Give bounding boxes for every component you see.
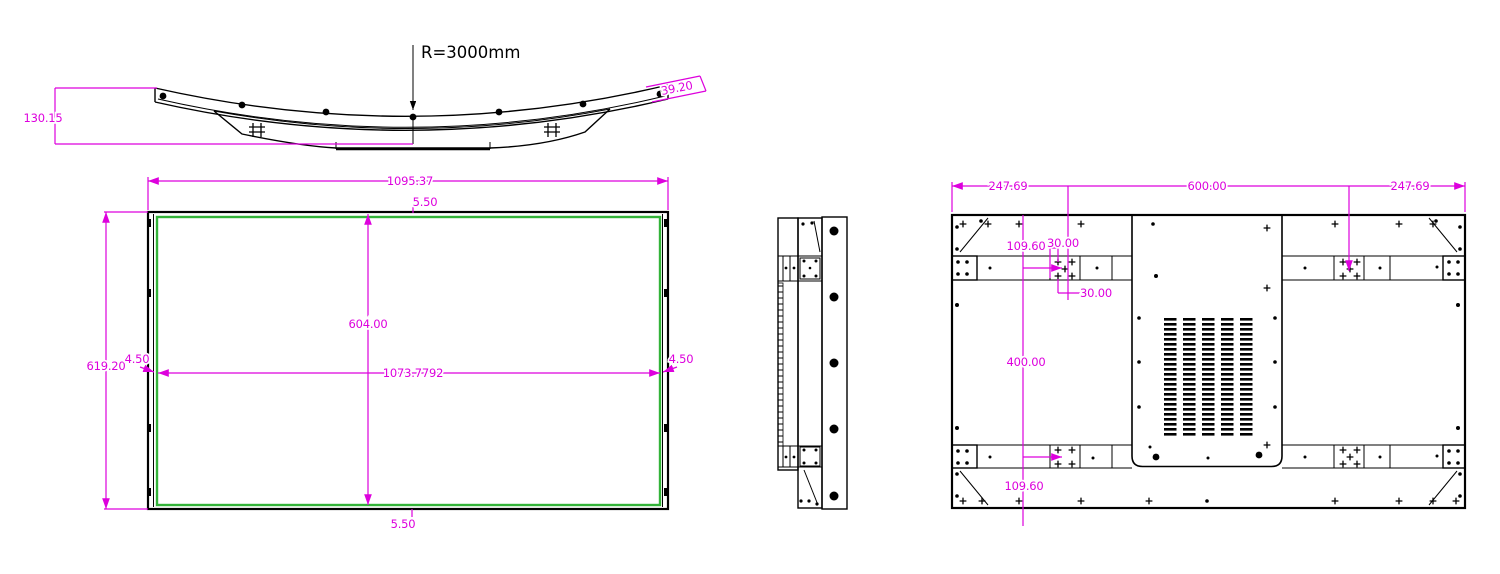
dim-left-bezel: 4.50 bbox=[125, 352, 154, 372]
front-view: 1095.37 5.50 619.20 604.00 1073.7792 4.5… bbox=[86, 174, 693, 531]
curved-top-view: R=3000mm bbox=[23, 43, 706, 149]
vent-panel bbox=[1132, 215, 1282, 467]
left-mount-span-value: 247.69 bbox=[988, 179, 1027, 193]
dim-active-height: 604.00 bbox=[348, 214, 387, 505]
active-area-outline bbox=[157, 217, 660, 505]
hole-pitch-v-value: 30.00 bbox=[1080, 286, 1112, 300]
overall-height-value: 619.20 bbox=[86, 359, 125, 373]
top-mount-offset-value: 109.60 bbox=[1006, 239, 1045, 253]
center-mount-span-value: 600.00 bbox=[1187, 179, 1226, 193]
bottom-mount-offset-value: 109.60 bbox=[1004, 479, 1043, 493]
dim-bottom-bezel: 5.50 bbox=[391, 509, 416, 531]
active-height-value: 604.00 bbox=[348, 317, 387, 331]
clip-symbol-left bbox=[249, 123, 265, 137]
hole-pitch-h-value: 30.00 bbox=[1047, 236, 1079, 250]
front-edge-ticks bbox=[147, 219, 668, 496]
right-mount-span-value: 247.69 bbox=[1390, 179, 1429, 193]
engineering-drawing-canvas: R=3000mm bbox=[0, 0, 1500, 574]
top-depth-value: 130.15 bbox=[23, 111, 62, 125]
left-bezel-value: 4.50 bbox=[125, 352, 150, 366]
side-view bbox=[778, 217, 847, 509]
clip-symbol-right bbox=[544, 123, 560, 137]
radius-label: R=3000mm bbox=[421, 43, 520, 62]
vertical-mount-span-value: 400.00 bbox=[1006, 355, 1045, 369]
dim-overall-width: 1095.37 bbox=[148, 174, 668, 210]
overall-width-value: 1095.37 bbox=[387, 174, 433, 188]
bottom-bezel-value: 5.50 bbox=[391, 517, 416, 531]
active-width-value: 1073.7792 bbox=[383, 366, 443, 380]
top-view-screw-holes bbox=[160, 91, 664, 121]
front-outer-frame bbox=[148, 212, 668, 509]
right-bezel-value: 4.50 bbox=[669, 352, 694, 366]
side-strip-holes bbox=[830, 227, 839, 501]
side-glass-edge bbox=[778, 283, 783, 446]
dim-top-bezel: 5.50 bbox=[413, 195, 438, 213]
dim-active-width: 1073.7792 bbox=[158, 366, 660, 380]
curved-display-drawing: R=3000mm bbox=[0, 0, 1500, 574]
dim-top-depth: 130.15 bbox=[23, 88, 413, 144]
top-bezel-value: 5.50 bbox=[413, 195, 438, 209]
dim-rear-vertical-chain: 109.60 400.00 109.60 bbox=[1004, 215, 1062, 526]
rear-view: 247.69 600.00 247.69 109.60 400.00 109.6… bbox=[952, 179, 1465, 526]
vent-slots bbox=[1164, 318, 1253, 436]
